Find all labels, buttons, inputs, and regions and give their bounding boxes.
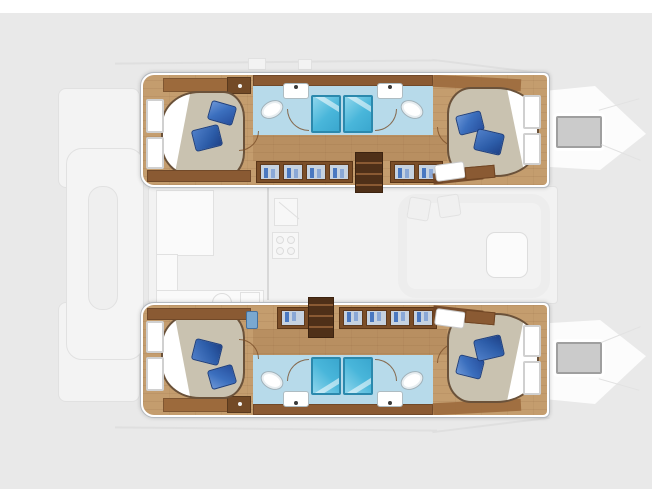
hanging-clothes-icon — [292, 312, 296, 321]
vanity-counter — [253, 75, 433, 86]
burner-icon — [276, 236, 284, 244]
aft-cabin — [143, 305, 253, 415]
hanging-clothes-icon — [340, 169, 344, 178]
hanging-clothes-icon — [377, 312, 381, 321]
hanging-clothes-icon — [354, 312, 358, 321]
locker-panel — [394, 164, 415, 180]
sofa-cushion-ghost — [436, 193, 461, 218]
faucet-icon — [388, 85, 392, 89]
hanging-clothes-icon — [401, 312, 405, 321]
shower-stall — [343, 357, 373, 395]
locker-panel — [366, 310, 386, 326]
shower-stall — [311, 95, 341, 133]
catamaran-deck-plan — [0, 0, 652, 489]
deck-edge-line-bottom — [115, 426, 437, 431]
forward-cabin — [431, 75, 547, 185]
vanity-counter — [253, 404, 433, 415]
hanging-clothes-icon — [285, 312, 289, 322]
hanging-lockers — [339, 307, 437, 329]
stove-ghost — [272, 232, 299, 259]
hanging-clothes-icon — [394, 312, 398, 322]
hull-interior — [143, 305, 547, 415]
locker-panel — [260, 164, 280, 180]
hanging-clothes-icon — [347, 312, 351, 322]
burner-icon — [287, 247, 295, 255]
cabin-cabinet — [147, 170, 251, 182]
forward-cabin — [431, 305, 547, 415]
bow-hatch-window — [556, 116, 602, 148]
hanging-clothes-icon — [317, 169, 321, 178]
knob-icon — [238, 402, 242, 406]
sink — [283, 83, 309, 99]
burner-icon — [276, 247, 284, 255]
bench-seat — [434, 308, 466, 329]
mast-compression-post-line — [267, 188, 269, 300]
hull-interior — [143, 75, 547, 185]
hanging-clothes-icon — [333, 168, 337, 178]
saloon-table-ghost — [486, 232, 528, 278]
hanging-clothes-icon — [422, 168, 426, 178]
cockpit-table-ghost — [88, 186, 118, 310]
hanging-clothes-icon — [370, 312, 374, 322]
hanging-clothes-icon — [424, 312, 428, 321]
corridor-floor — [253, 135, 447, 161]
shower-stall — [311, 357, 341, 395]
sofa-cushion-ghost — [406, 196, 431, 221]
galley-counter-ghost — [156, 190, 214, 256]
roof-hatch-ghost — [298, 59, 312, 70]
hanging-lockers — [256, 161, 353, 183]
burner-icon — [287, 236, 295, 244]
shower-stall — [343, 95, 373, 133]
hanging-clothes-icon — [405, 169, 409, 178]
starboard-hull — [140, 302, 550, 418]
roof-hatch-ghost — [248, 58, 266, 70]
faucet-icon — [294, 401, 298, 405]
locker-panel — [306, 164, 326, 180]
locker-panel — [390, 310, 410, 326]
deck-edge-line-top — [115, 59, 437, 64]
hull-window — [146, 357, 164, 391]
hanging-clothes-icon — [294, 169, 298, 178]
hull-window — [146, 137, 164, 169]
locker-panel — [413, 310, 433, 326]
bow-hatch-window — [556, 342, 602, 374]
hanging-clothes-icon — [398, 168, 402, 178]
locker-panel — [283, 164, 303, 180]
faucet-icon — [388, 401, 392, 405]
sink — [377, 391, 403, 407]
hanging-clothes-icon — [271, 169, 275, 178]
hanging-clothes-icon — [417, 312, 421, 322]
page-top-strip — [0, 0, 652, 13]
locker-panel — [281, 310, 305, 326]
port-hull — [140, 72, 550, 188]
hull-window — [146, 321, 164, 353]
headboard-window — [523, 95, 541, 129]
corridor-locker-door — [246, 311, 258, 329]
hanging-clothes-icon — [310, 168, 314, 178]
foot-cabinet — [464, 165, 495, 181]
faucet-icon — [294, 85, 298, 89]
dresser — [227, 77, 251, 94]
locker-panel — [343, 310, 363, 326]
hull-window — [146, 99, 164, 133]
knob-icon — [238, 84, 242, 88]
sink — [377, 83, 403, 99]
headboard-window — [523, 361, 541, 395]
hanging-clothes-icon — [287, 168, 291, 178]
hanging-lockers — [277, 307, 309, 329]
corridor-floor — [253, 329, 447, 355]
aft-cabin — [143, 75, 253, 185]
foot-cabinet — [464, 310, 495, 326]
headboard-window — [523, 133, 541, 165]
companionway-stairs — [308, 297, 334, 338]
hanging-clothes-icon — [264, 168, 268, 178]
deck-edge-line-bottom-bow — [432, 417, 549, 433]
dresser — [227, 396, 251, 413]
cabin-cabinet — [147, 308, 251, 320]
companionway-stairs — [355, 152, 383, 193]
headboard-window — [523, 325, 541, 357]
locker-panel — [329, 164, 349, 180]
sink — [283, 391, 309, 407]
